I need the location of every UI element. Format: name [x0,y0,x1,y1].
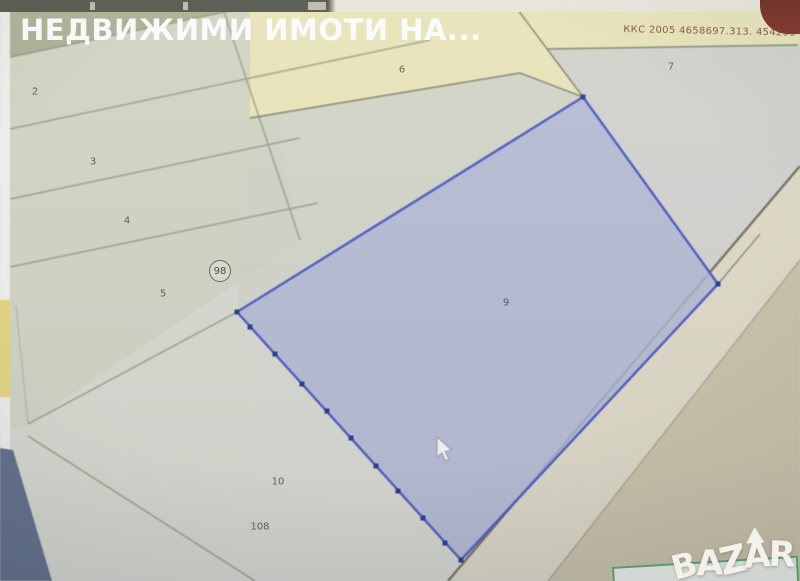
road-number-badge: 98 [209,260,231,282]
listing-photo: ККС 2005 4658697.313. 454293 23456791010… [0,0,800,581]
logo-letter: B [668,548,699,581]
logo-letter: A [742,538,769,575]
logo-letter: R [768,538,794,574]
bezel-mark [183,2,188,10]
watermark-title: НЕДВИЖИМИ ИМОТИ НА... [20,13,481,47]
bezel-mark [308,2,326,10]
screen-edge-yellow-strip [0,300,10,397]
logo-roof-icon [746,527,765,544]
bezel-mark [90,2,95,10]
cadastral-map[interactable] [0,0,800,581]
screen-top-bezel [0,0,800,12]
